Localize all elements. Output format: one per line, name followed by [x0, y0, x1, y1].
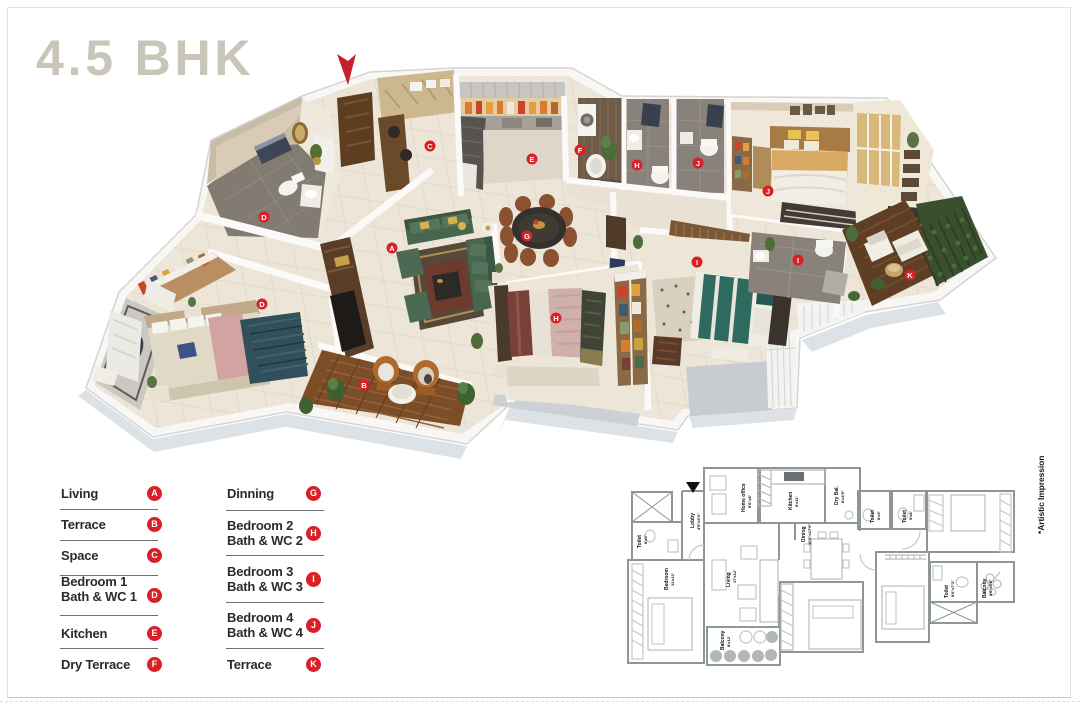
svg-text:8'6"x8'6": 8'6"x8'6": [988, 579, 993, 596]
svg-text:17'x12': 17'x12': [732, 570, 737, 583]
svg-text:I: I: [797, 256, 799, 265]
svg-text:C: C: [427, 142, 433, 151]
svg-text:10'6"x17'9": 10'6"x17'9": [807, 524, 812, 545]
svg-text:J: J: [696, 159, 700, 168]
svg-text:E: E: [529, 155, 534, 164]
svg-text:D: D: [259, 300, 265, 309]
svg-text:B: B: [361, 381, 367, 390]
svg-text:8'x11': 8'x11': [794, 496, 799, 507]
svg-text:8'6"x7'3": 8'6"x7'3": [950, 580, 955, 597]
svg-text:D: D: [261, 213, 267, 222]
svg-text:K: K: [907, 271, 913, 280]
svg-text:8'x12': 8'x12': [726, 636, 731, 647]
svg-text:I: I: [696, 258, 698, 267]
svg-text:H: H: [553, 314, 558, 323]
svg-text:F: F: [578, 146, 583, 155]
svg-text:11'x12': 11'x12': [670, 573, 675, 586]
svg-text:8'x5': 8'x5': [643, 535, 648, 544]
svg-text:8'x5': 8'x5': [876, 511, 881, 520]
svg-text:5'x8': 5'x8': [908, 511, 913, 520]
svg-text:J: J: [766, 187, 770, 196]
svg-text:4'9"x5'3": 4'9"x5'3": [696, 513, 701, 530]
svg-text:8'6"x8': 8'6"x8': [747, 495, 752, 508]
svg-text:A: A: [389, 244, 395, 253]
svg-text:8'x4'9": 8'x4'9": [840, 490, 845, 503]
svg-text:H: H: [634, 161, 639, 170]
svg-text:G: G: [524, 232, 530, 241]
